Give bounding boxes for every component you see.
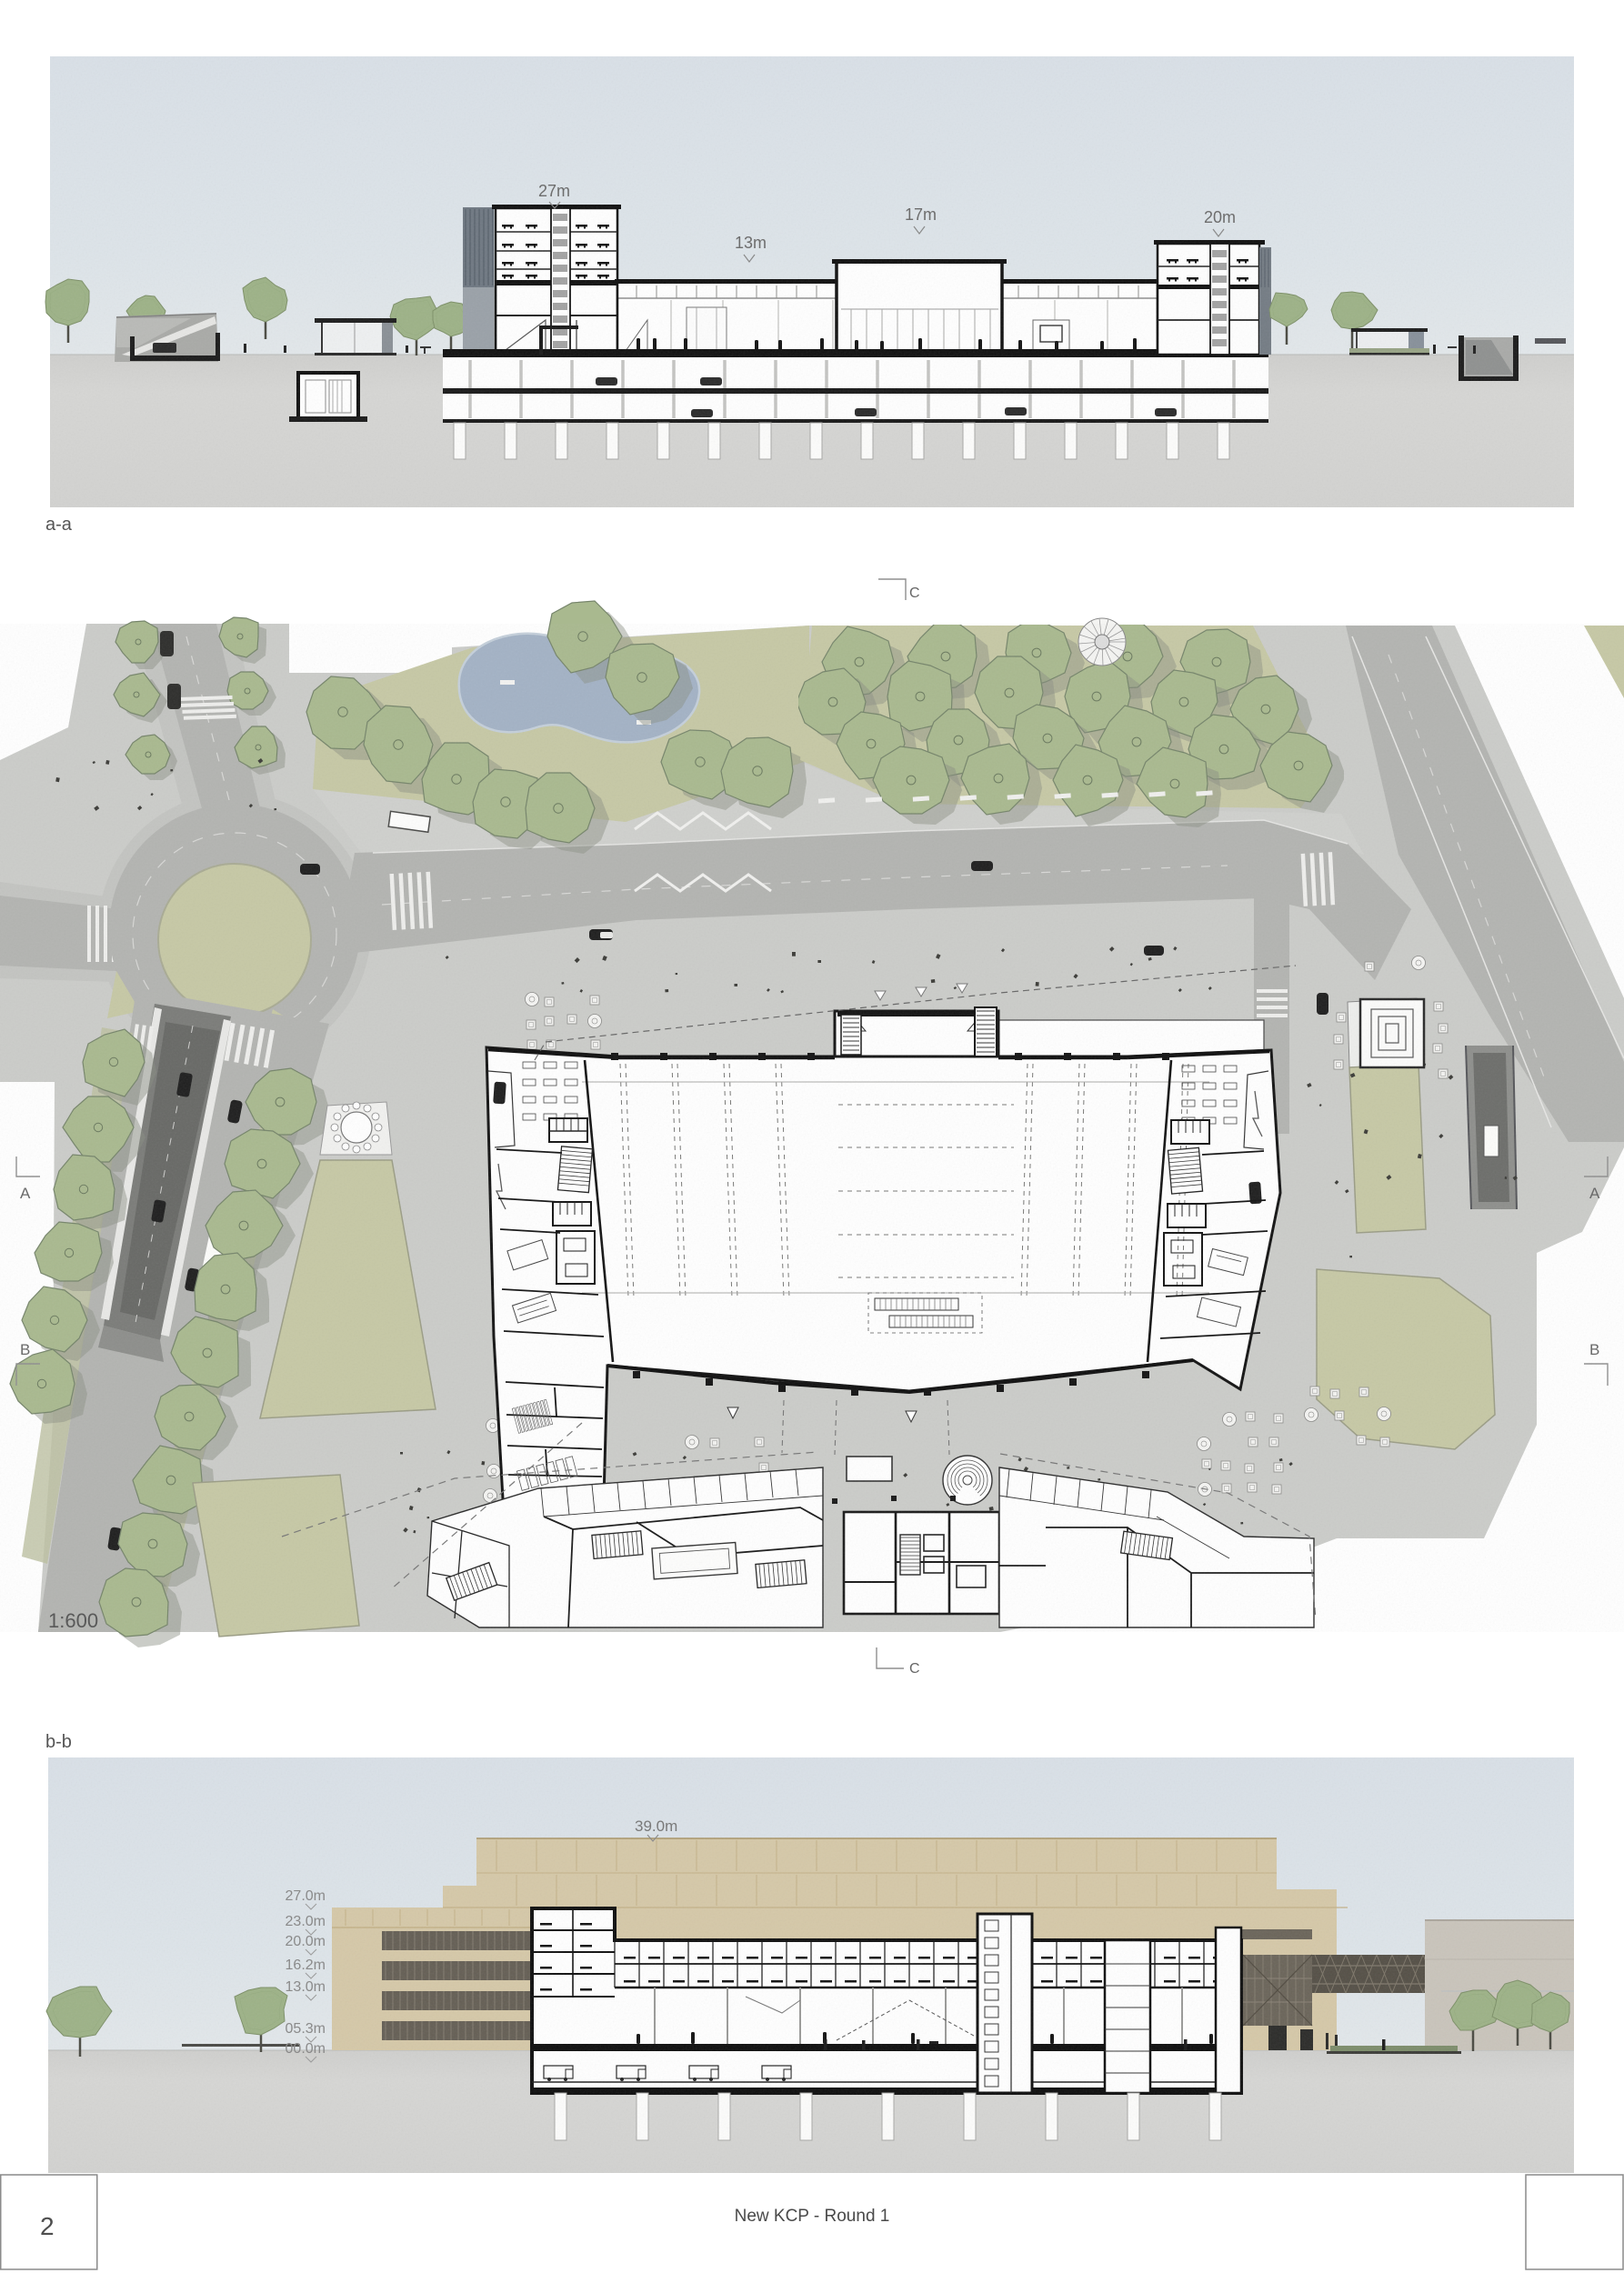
svg-text:A: A xyxy=(20,1185,31,1202)
svg-text:C: C xyxy=(909,586,920,601)
svg-text:a-a: a-a xyxy=(45,515,73,535)
svg-text:b-b: b-b xyxy=(45,1732,72,1752)
svg-text:B: B xyxy=(20,1341,30,1358)
svg-text:B: B xyxy=(1589,1341,1599,1358)
svg-text:C: C xyxy=(909,1661,920,1677)
svg-text:2: 2 xyxy=(40,2212,55,2240)
svg-text:New KCP - Round 1: New KCP - Round 1 xyxy=(735,2207,890,2226)
